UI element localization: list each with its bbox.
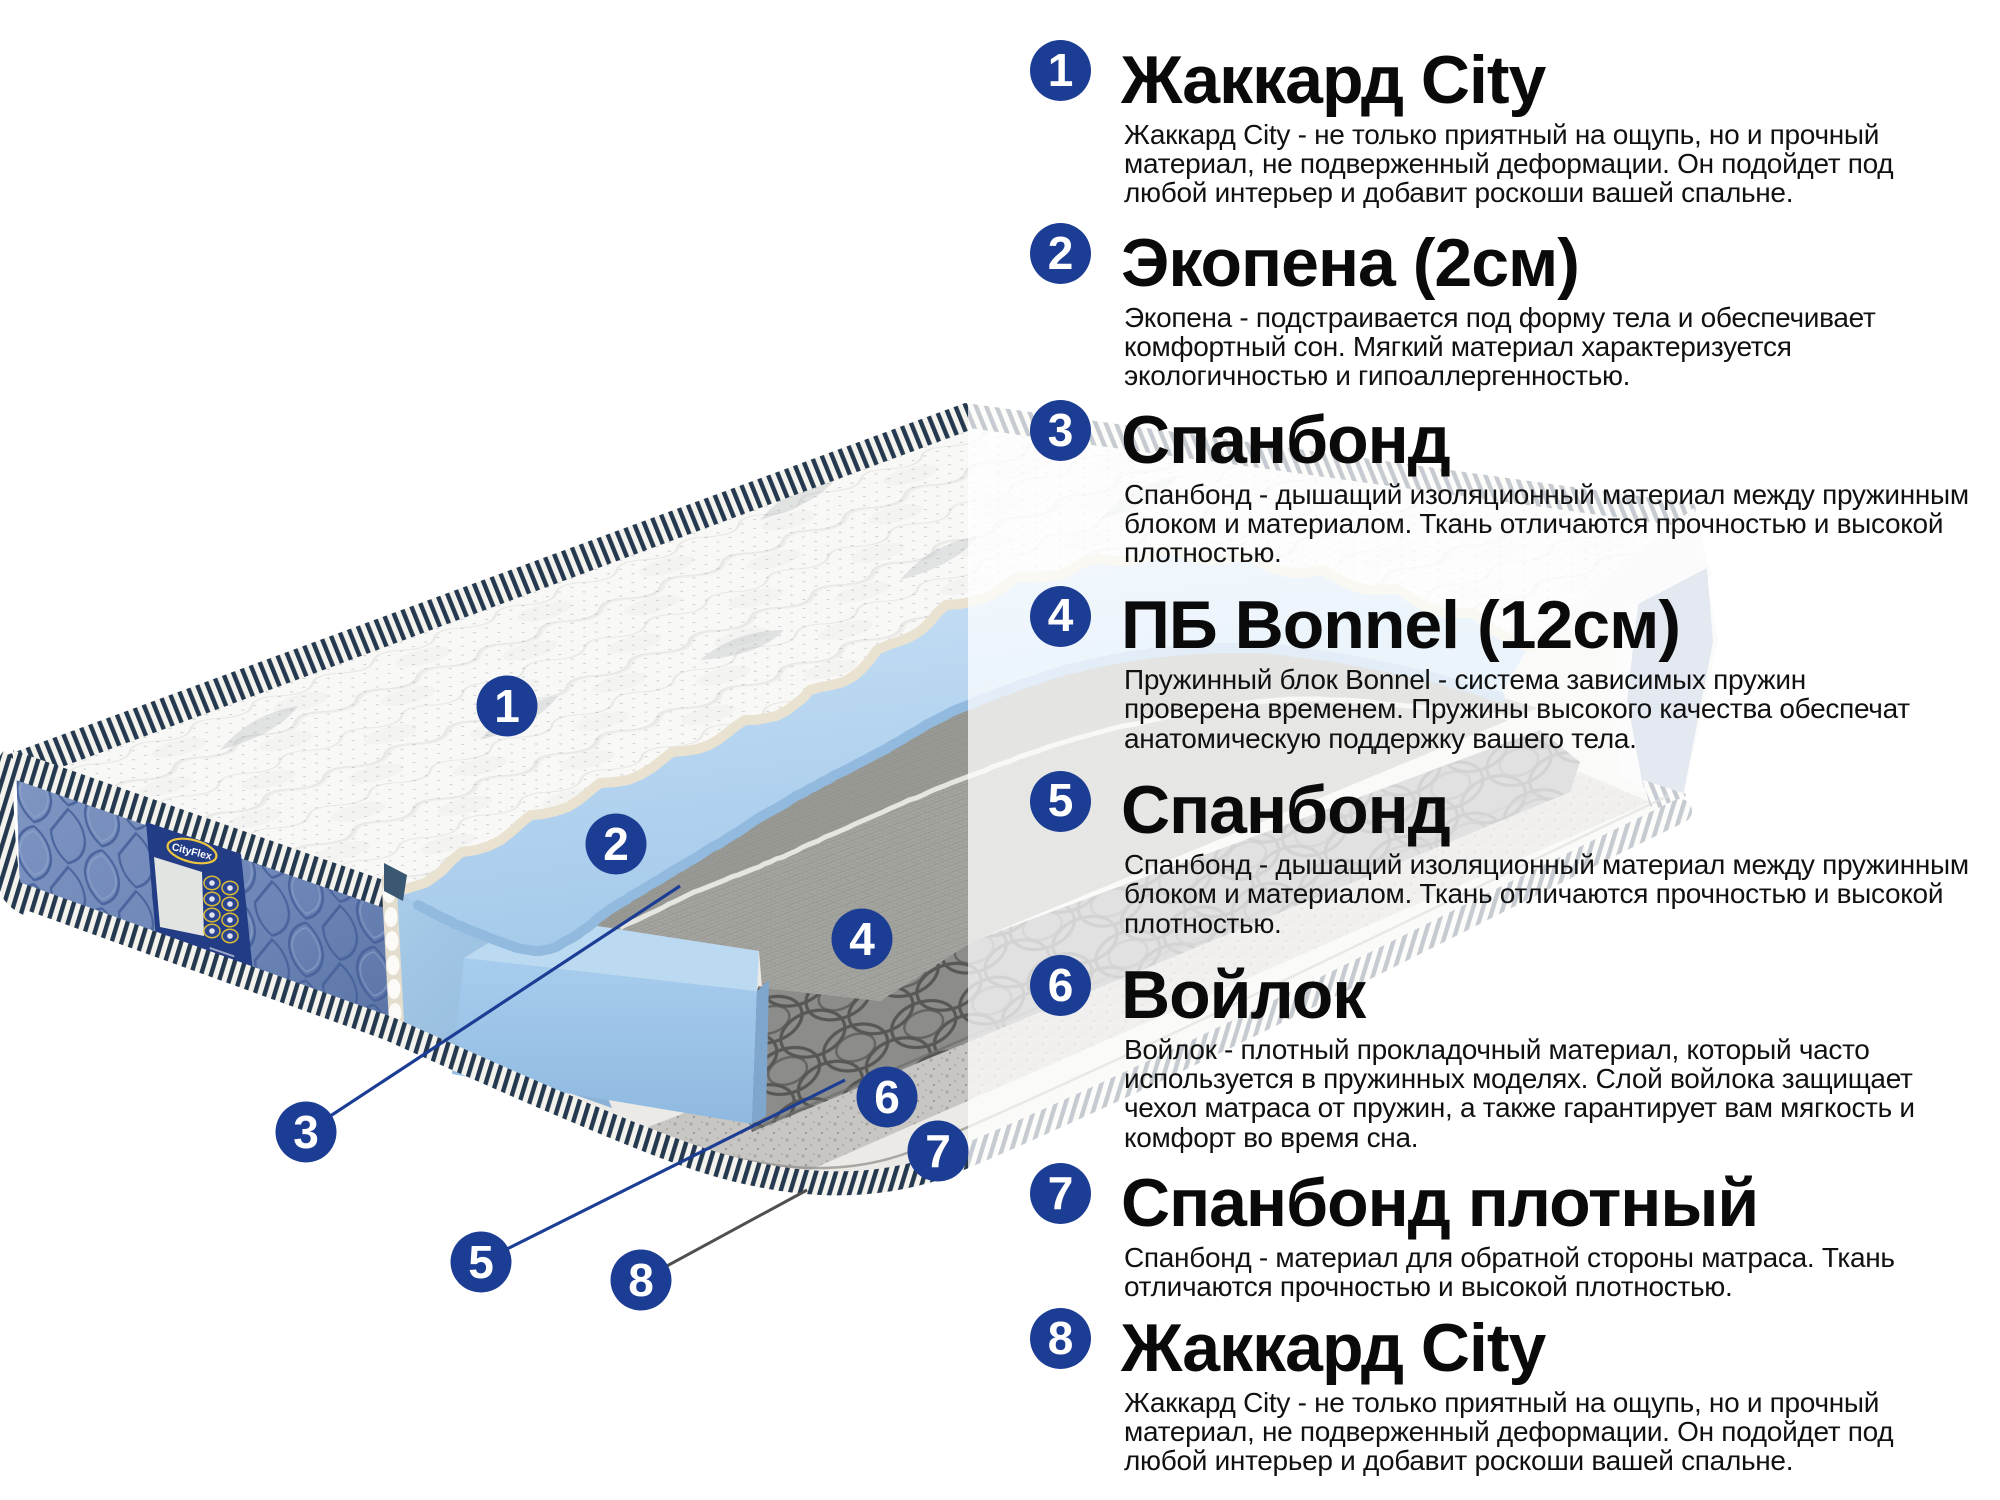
- svg-text:5: 5: [468, 1236, 494, 1288]
- svg-text:7: 7: [925, 1125, 951, 1177]
- svg-text:4: 4: [849, 913, 875, 965]
- svg-text:1: 1: [494, 680, 520, 732]
- svg-text:8: 8: [628, 1254, 654, 1306]
- svg-text:6: 6: [874, 1071, 900, 1123]
- svg-text:3: 3: [293, 1106, 319, 1158]
- svg-text:2: 2: [603, 818, 629, 870]
